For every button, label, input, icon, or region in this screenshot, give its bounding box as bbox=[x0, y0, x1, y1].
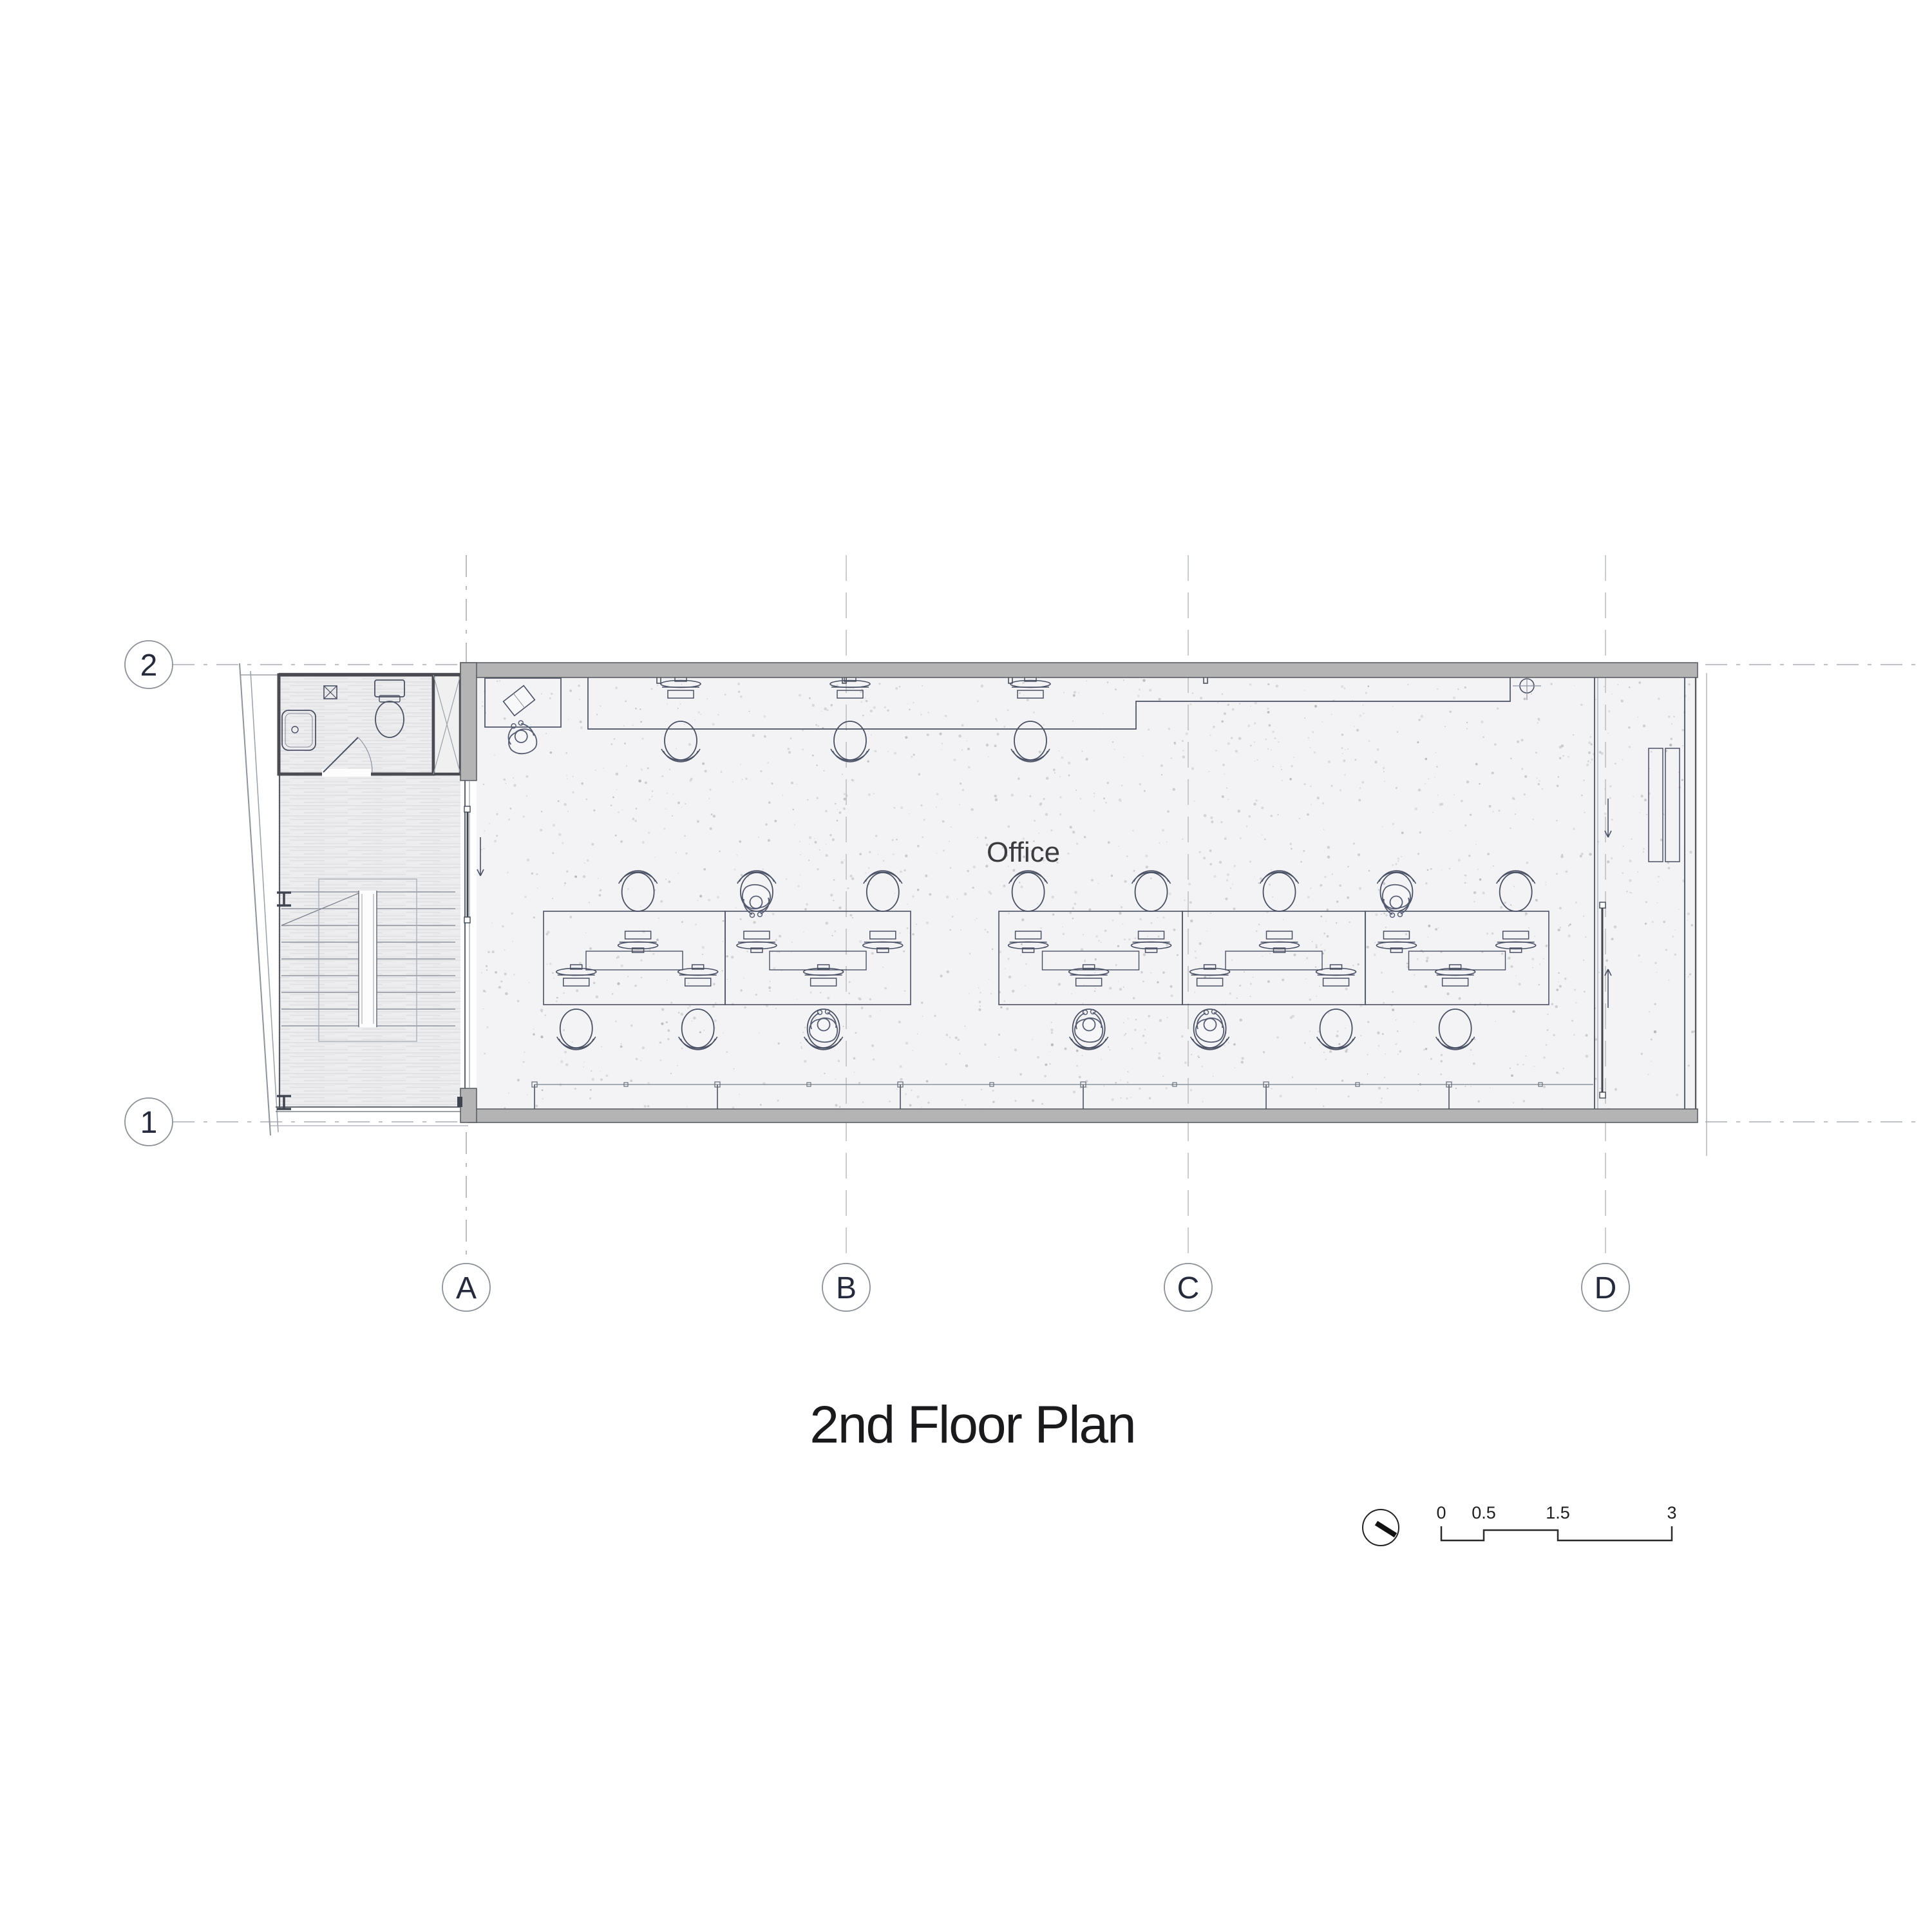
person-head bbox=[1204, 1019, 1217, 1031]
north-wall bbox=[460, 663, 1698, 677]
stair-void bbox=[359, 891, 377, 1027]
drawing-sheet: 2 1 A B C D Office 2nd Floor Plan 0 0.5 … bbox=[0, 0, 1932, 1932]
grid-col-label: D bbox=[1595, 1271, 1617, 1305]
grid-row-label: 2 bbox=[140, 649, 158, 683]
bathroom bbox=[279, 675, 433, 777]
person-head bbox=[818, 1019, 830, 1031]
grid-col-label: B bbox=[836, 1271, 857, 1305]
office-floor bbox=[477, 677, 1698, 1122]
person-head bbox=[1083, 1019, 1095, 1031]
scale-bar-line bbox=[1441, 1526, 1672, 1540]
north-arrow-icon bbox=[1363, 1510, 1399, 1546]
person-head bbox=[1390, 896, 1403, 909]
bathroom-walls bbox=[279, 675, 433, 774]
door-handle bbox=[464, 806, 470, 812]
person-head bbox=[750, 896, 762, 909]
stair-annex bbox=[276, 673, 461, 1112]
room-label-office: Office bbox=[987, 837, 1060, 868]
grid-row-label: 1 bbox=[140, 1106, 158, 1140]
grid-col-label: A bbox=[456, 1271, 477, 1305]
grid-col-label: C bbox=[1177, 1271, 1200, 1305]
door-handle bbox=[1600, 902, 1605, 908]
scale-bar: 0 0.5 1.5 3 bbox=[1436, 1503, 1676, 1540]
west-wall-pier bbox=[460, 663, 477, 781]
scale-tick-label: 3 bbox=[1667, 1503, 1676, 1522]
column-marker bbox=[457, 1097, 462, 1107]
site-boundary-line bbox=[240, 663, 270, 1135]
scale-tick-label: 0.5 bbox=[1472, 1503, 1496, 1522]
drawing-title: 2nd Floor Plan bbox=[810, 1396, 1135, 1454]
shaft bbox=[433, 675, 460, 774]
scale-tick-label: 1.5 bbox=[1546, 1503, 1570, 1522]
door-opening bbox=[322, 769, 371, 777]
south-wall bbox=[468, 1109, 1698, 1122]
door-handle bbox=[464, 917, 470, 923]
door-handle bbox=[1600, 1092, 1605, 1098]
scale-tick-label: 0 bbox=[1436, 1503, 1446, 1522]
west-wall-pier bbox=[460, 1088, 477, 1122]
floor-plan-canvas: 2 1 A B C D Office 2nd Floor Plan 0 0.5 … bbox=[0, 0, 1932, 1932]
office bbox=[477, 677, 1698, 1122]
